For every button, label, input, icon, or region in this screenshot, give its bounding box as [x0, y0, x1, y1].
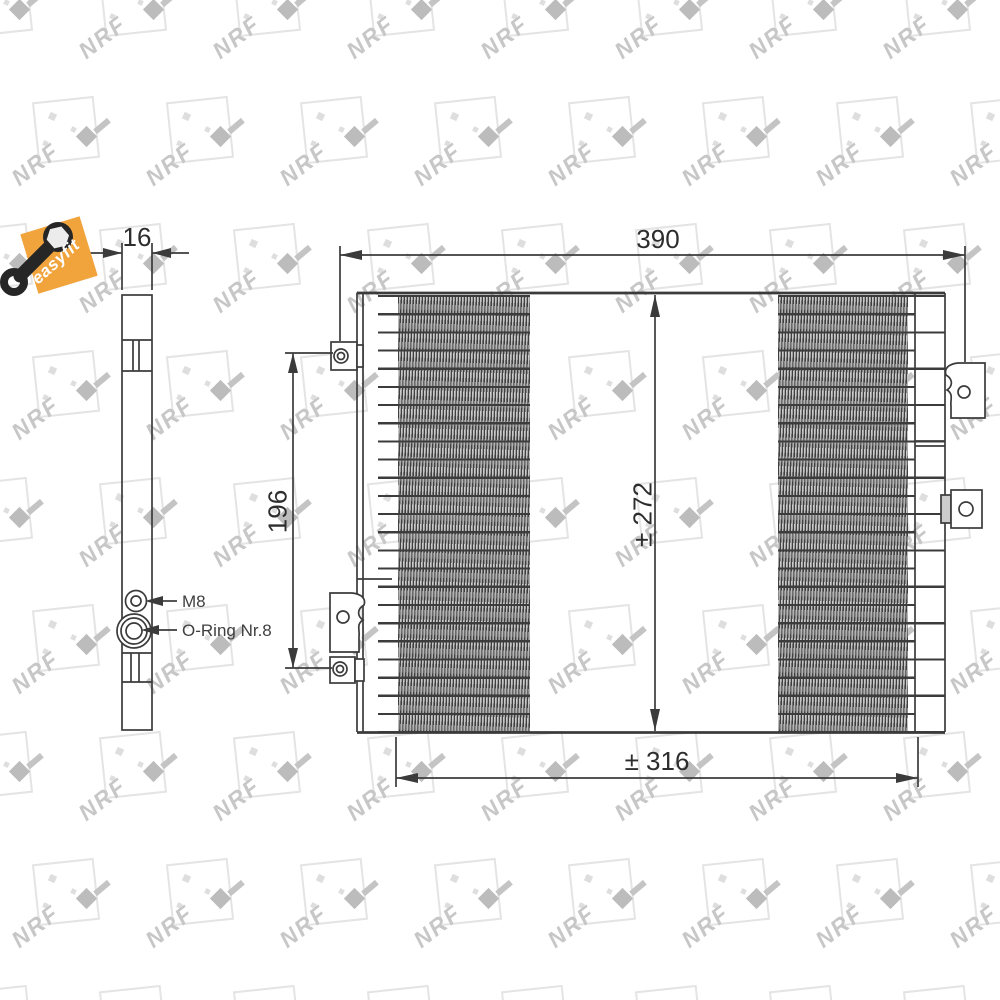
dim-196-text: 196 [263, 472, 294, 552]
dim-390-text: 390 [618, 224, 698, 255]
technical-drawing-canvas: NRFNRFNRFNRFNRFNRFNRFNRFNRFNRFNRFNRFNRFN… [0, 0, 1000, 1000]
dim-16-text: 16 [112, 222, 162, 253]
labels-layer: 16 390 196 ± 272 ± 316 M8 O-Ring Nr.8 [0, 0, 1000, 1000]
dim-272-text: ± 272 [628, 465, 659, 565]
m8-label: M8 [182, 592, 206, 612]
dim-316-text: ± 316 [607, 746, 707, 777]
oring-label: O-Ring Nr.8 [182, 621, 272, 641]
